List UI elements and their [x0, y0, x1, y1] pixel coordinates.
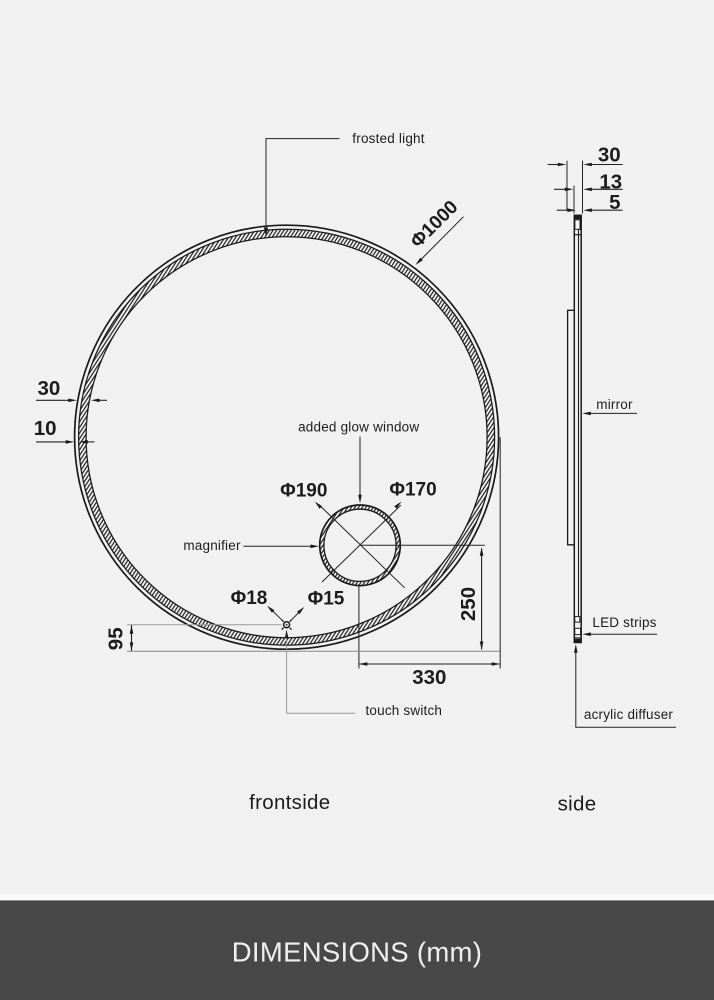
svg-text:LED strips: LED strips	[592, 615, 656, 630]
svg-text:10: 10	[34, 417, 57, 440]
svg-text:added glow window: added glow window	[298, 420, 419, 435]
svg-text:magnifier: magnifier	[183, 538, 241, 553]
svg-text:DIMENSIONS (mm): DIMENSIONS (mm)	[232, 937, 482, 968]
svg-text:Φ18: Φ18	[231, 588, 268, 609]
svg-text:95: 95	[105, 627, 128, 650]
svg-text:Φ170: Φ170	[389, 480, 436, 501]
svg-text:30: 30	[598, 143, 621, 166]
svg-text:330: 330	[412, 666, 446, 689]
svg-text:touch switch: touch switch	[365, 703, 442, 718]
svg-text:frosted light: frosted light	[352, 131, 424, 146]
svg-text:5: 5	[609, 191, 620, 214]
svg-text:250: 250	[457, 587, 480, 621]
svg-text:30: 30	[37, 377, 60, 400]
svg-text:side: side	[558, 793, 597, 816]
svg-text:mirror: mirror	[596, 397, 633, 412]
svg-text:frontside: frontside	[249, 791, 330, 814]
svg-text:acrylic diffuser: acrylic diffuser	[584, 707, 674, 722]
svg-text:Φ15: Φ15	[308, 589, 345, 610]
svg-text:13: 13	[599, 170, 622, 193]
svg-text:Φ190: Φ190	[280, 480, 327, 501]
